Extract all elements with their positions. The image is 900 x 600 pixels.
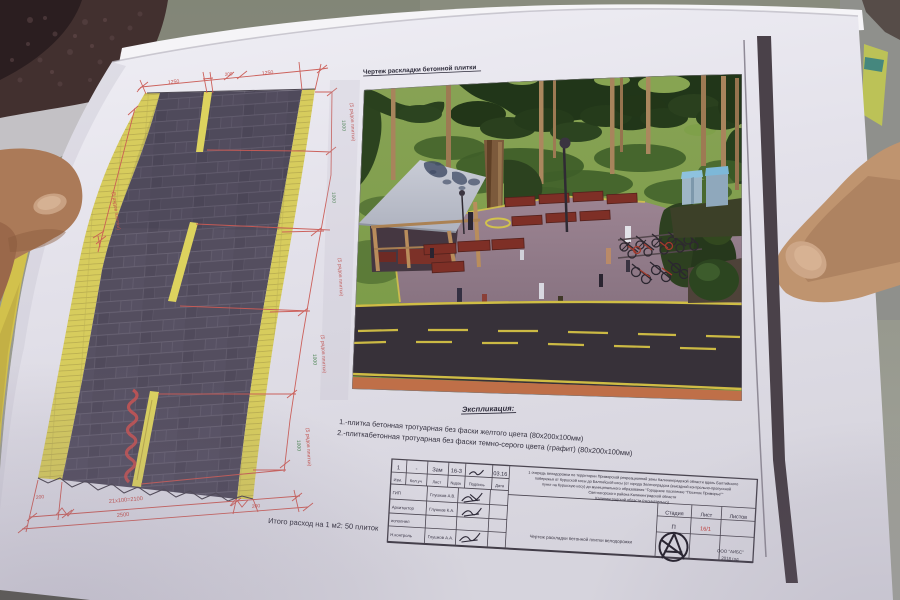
svg-text:Зам: Зам bbox=[432, 467, 443, 474]
svg-text:Лист: Лист bbox=[432, 479, 441, 484]
svg-text:Дата: Дата bbox=[495, 483, 505, 489]
svg-text:1000: 1000 bbox=[311, 354, 318, 366]
svg-text:200: 200 bbox=[225, 71, 234, 77]
svg-text:1250: 1250 bbox=[262, 70, 274, 77]
svg-text:16-3: 16-3 bbox=[451, 468, 463, 475]
svg-text:№док: №док bbox=[450, 480, 461, 486]
svg-text:03.16: 03.16 bbox=[493, 471, 507, 478]
svg-text:1250: 1250 bbox=[168, 79, 180, 86]
svg-text:Подпись: Подпись bbox=[469, 481, 485, 487]
